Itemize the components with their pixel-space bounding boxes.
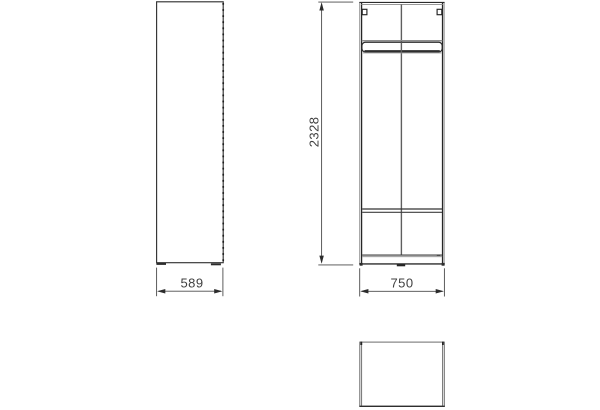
svg-text:750: 750 [390,276,413,291]
svg-text:2328: 2328 [306,117,321,148]
svg-text:589: 589 [180,276,203,291]
